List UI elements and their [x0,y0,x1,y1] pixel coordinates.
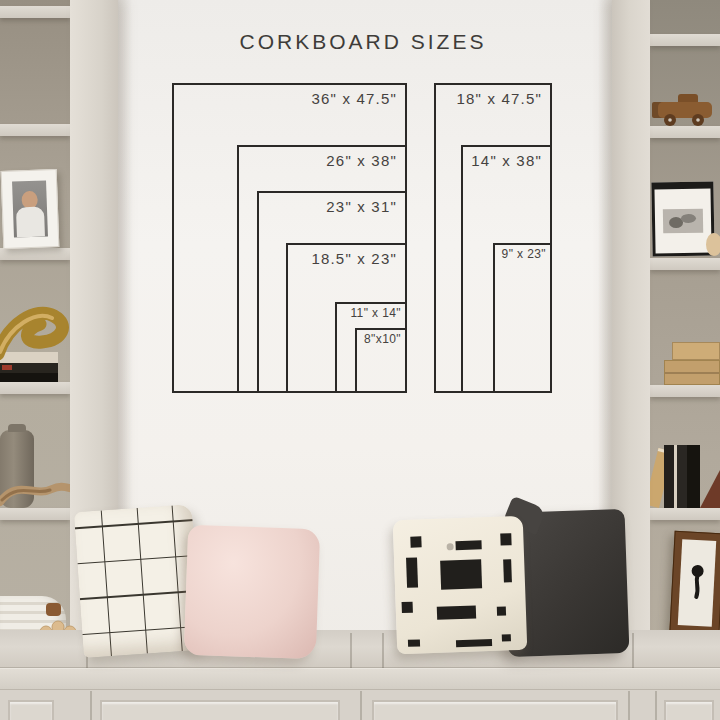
block-pattern-shape [408,639,420,646]
block-pattern-shape [502,634,511,641]
block-pattern-shape [456,639,492,647]
ink-sketch [684,562,710,603]
upright-books [664,445,700,508]
corkboard-size-label: 14" x 38" [471,152,542,169]
counter-seam [382,633,384,668]
block-pattern-shape [437,605,476,619]
corkboard-outline: 8"x10" [355,328,407,393]
cabinet-door-panel [100,700,340,720]
block-print-pillow [393,516,528,654]
corkboard-size-label: 36" x 47.5" [311,90,397,107]
block-pattern-shape [455,540,481,550]
blush-velvet-pillow [184,525,320,660]
block-pattern-shape [503,559,512,582]
windowpane-pillow [74,504,202,658]
corkboard-size-label: 23" x 31" [326,198,397,215]
corkboard-size-label: 26" x 38" [326,152,397,169]
cabinet-door-gap [360,691,362,720]
framed-ink-art [669,531,720,635]
block-pattern-shape [497,606,506,615]
counter-seam [632,633,634,668]
wooden-egg [706,233,720,256]
corkboard-outline: 9" x 23" [493,243,552,393]
art-mat [678,539,716,627]
block-pattern-shape [410,536,421,547]
block-pattern-shape [500,533,511,545]
block-pattern-shape [440,559,482,589]
cabinet-door-gap [655,691,657,720]
room-photo: CORKBOARD SIZES 36" x 47.5"26" x 38"23" … [0,0,720,720]
block-pattern-shape [406,557,418,587]
basket-leather-handle [46,603,61,616]
zipper-pull [447,543,454,550]
baby-photo [663,209,703,234]
corkboard-size-label: 11" x 14" [350,306,401,320]
block-pattern-shape [402,602,413,613]
cabinet-door-panel [8,700,54,720]
diagram-title: CORKBOARD SIZES [172,30,554,54]
corkboard-size-label: 18" x 47.5" [456,90,542,107]
cabinet-door-gap [90,691,92,720]
cabinet-door-panel [664,700,714,720]
cabinet-door-panel [372,700,618,720]
wooden-crate-small [672,342,720,360]
corkboard-size-label: 9" x 23" [502,247,546,261]
counter-seam [350,633,352,668]
child-photo [12,180,48,237]
corkboard-size-label: 8"x10" [364,332,401,346]
cabinet-door-gap [628,691,630,720]
bench-front-edge [0,668,720,690]
framed-child-photo [1,169,60,249]
wooden-toy-car [652,92,716,128]
corkboard-size-label: 18.5" x 23" [311,250,397,267]
left-shelf-board [0,508,70,520]
right-shelf-board [650,508,720,520]
wooden-crate-large [664,360,720,385]
